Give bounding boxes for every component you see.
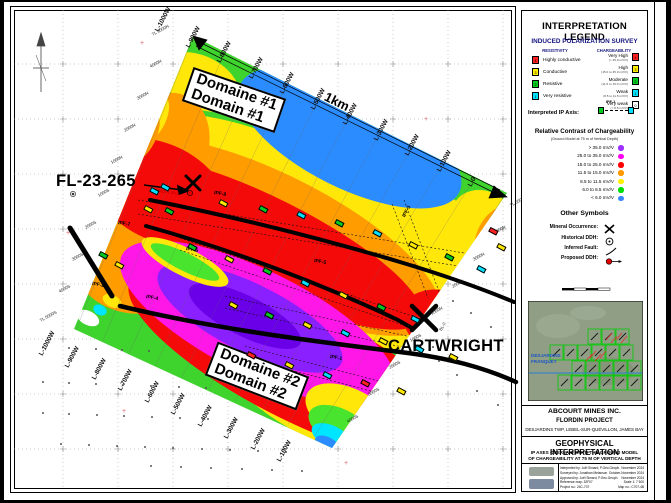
ip-axis-chip: [496, 243, 506, 251]
historical-ddh-dot: [42, 412, 44, 414]
chargeability-chip: 2: [632, 77, 639, 85]
chargeability-caption: (8.5 to 11.5 mV/V): [568, 94, 628, 98]
credit-row: Reference map: 32F07Scale 1: 7 500: [560, 480, 644, 484]
ip-axis-chip: [476, 265, 486, 273]
ipf-label: IPF-8: [213, 190, 226, 198]
ip-axis-chip: [340, 329, 350, 337]
inset-label-desjardins: DESJARDINS: [531, 353, 561, 358]
station-label-west: 4000S: [58, 283, 71, 293]
resistivity-chip: 3: [532, 68, 539, 76]
chargeability-label: Very High(> 35.0 mV/V): [568, 53, 628, 62]
chargeability-caption: (> 35.0 mV/V): [568, 58, 628, 62]
titleblock-separator: [522, 463, 647, 464]
station-label-west: 1000N: [110, 154, 124, 164]
chargeability-caption: (11.5 to 15.0 mV/V): [568, 82, 628, 86]
credit-label: Project no.: 24C-707: [560, 485, 589, 489]
ip-axis-chip: [396, 387, 406, 395]
credits-divider: [558, 463, 559, 491]
station-label-east: 2000S: [388, 359, 401, 369]
ip-axis-chip-cyan: [628, 107, 634, 114]
line-label-bottom: L-200W: [250, 427, 267, 451]
ipf-label: IPF-4: [145, 294, 158, 302]
historical-ddh-dot: [476, 390, 478, 392]
mineral-occurrence-row: Mineral Occurrence:: [524, 224, 598, 230]
historical-ddh-dot: [271, 469, 273, 471]
historical-ddh-dot: [150, 465, 152, 467]
credit-row: Project no.: 24C-707Map no.: C707-4B: [560, 485, 644, 489]
map-subtitle-1: IP AXES OVERLAID ONTO THE GROUND MODEL: [522, 450, 647, 455]
ip-axis-chip: [218, 199, 228, 207]
station-label-east: 3000N: [472, 251, 486, 261]
cartwright-label: CARTWRIGHT: [388, 337, 504, 356]
map-sheet: FL-23-265 CARTWRIGHT Domaine #1 Domain #…: [0, 0, 671, 503]
historical-ddh-dot: [179, 417, 181, 419]
line-label-top: L-900W: [185, 25, 202, 49]
historical-ddh-dot: [172, 447, 174, 449]
proposed-ddh-icon: [605, 253, 623, 271]
grid-cross-red: +: [424, 118, 428, 122]
inset-label-franquet: FRANQUET: [531, 359, 557, 364]
line-label-bottom: L-800W: [91, 357, 108, 381]
proposed-ddh-row: Proposed DDH:: [524, 255, 598, 261]
contrast-subtitle: (Ground Model at 75 m of Vertical Depth): [522, 137, 647, 141]
line-label-top: L-700W: [248, 56, 265, 80]
station-label-west: 4000N: [149, 58, 163, 68]
contrast-dot: [618, 179, 624, 185]
line-label-top: L-800W: [216, 40, 233, 64]
ip-axis-chip: [300, 279, 310, 287]
contrast-label: > 35.0 mV/V: [526, 145, 614, 150]
line-label-top: L-100W: [436, 149, 453, 173]
chargeability-chip: 3: [632, 65, 639, 73]
historical-ddh-dot: [151, 416, 153, 418]
historical-ddh-dot: [301, 470, 303, 472]
line-label-top: L-300W: [373, 118, 390, 142]
credit-row: Surveyed by: Jonathan MelansonOctober-No…: [560, 471, 644, 475]
map-subtitle-2: OF CHARGEABILITY AT 75 M OF VERTICAL DEP…: [522, 456, 647, 461]
line-label-bottom: L-500W: [170, 392, 187, 416]
historical-ddh-dot: [88, 444, 90, 446]
contrast-title: Relative Contrast of Chargeability: [522, 128, 647, 135]
ip-axis-chip: [376, 303, 386, 311]
titleblock-separator: [522, 405, 647, 406]
historical-ddh-dot: [144, 446, 146, 448]
other-symbols-title: Other Symbols: [522, 210, 647, 217]
chargeability-label: Weak(8.5 to 11.5 mV/V): [568, 89, 628, 98]
resistivity-label: Resistive: [543, 82, 562, 87]
ip-axis-chip: [224, 255, 234, 263]
line-label-top: L-200W: [404, 133, 421, 157]
historical-ddh-dot: [207, 418, 209, 420]
resistivity-chip: 2: [532, 80, 539, 88]
station-label-east: 4000S: [346, 413, 359, 423]
resistivity-label: Conductive: [543, 70, 567, 75]
ip-axis-chip: [302, 321, 312, 329]
historical-ddh-dot: [60, 443, 62, 445]
ipf-label: IPF-2: [91, 281, 104, 289]
chargeability-label: High(15.0 to 35.0 mV/V): [568, 65, 628, 74]
company-logo: [529, 467, 554, 476]
contrast-label: 6.0 to 8.5 mV/V: [526, 187, 614, 192]
chargeability-caption: (15.0 to 35.0 mV/V): [568, 70, 628, 74]
historical-ddh-dot: [438, 360, 440, 362]
historical-ddh-dot: [452, 300, 454, 302]
line-label-bottom: L-1000W: [38, 330, 57, 357]
credit-row: Approved by: Joël Simard, P.Geo.Geoph.No…: [560, 476, 644, 480]
historical-ddh-dot: [68, 413, 70, 415]
historical-ddh-dot: [456, 374, 458, 376]
station-label-west: TL 5000S: [39, 310, 58, 323]
grid-cross-red: +: [140, 42, 144, 46]
chargeability-chip: 4: [632, 53, 639, 61]
historical-ddh-dot: [210, 467, 212, 469]
line-label-top: L-600W: [279, 71, 296, 95]
station-label-west: 3000S: [71, 251, 84, 261]
credit-value: November 2024: [621, 466, 644, 470]
contractor-logo: [529, 479, 554, 489]
inferred-fault-row: Inferred Fault:: [524, 245, 598, 251]
historical-ddh-dot: [497, 404, 499, 406]
contrast-label: 8.5 to 11.5 mV/V: [526, 179, 614, 184]
company-name: ABCOURT MINES INC.: [522, 408, 647, 415]
ip-axis-chip-green: [598, 107, 604, 114]
contrast-dot: [618, 187, 624, 193]
historical-ddh-dot: [201, 448, 203, 450]
historical-ddh-dot: [121, 349, 123, 351]
credit-label: Approved by: Joël Simard, P.Geo.Geoph.: [560, 476, 618, 480]
drillhole-label: FL-23-265: [56, 172, 136, 191]
ipf-label: IPF-3: [401, 205, 412, 219]
contrast-label: < 6.0 mV/V: [526, 195, 614, 200]
chargeability-chip: 1: [632, 89, 639, 97]
ip-axis-chip: [296, 211, 306, 219]
credit-value: Scale 1: 7 500: [624, 480, 644, 484]
line-label-bottom: L-700W: [117, 368, 134, 392]
line-label-bottom: L-400W: [197, 404, 214, 428]
historical-ddh-dot: [96, 414, 98, 416]
ipf-label: IPF-5: [313, 258, 326, 266]
station-label-west: 2000S: [84, 219, 97, 229]
historical-ddh-dot: [95, 348, 97, 350]
ip-axis-chip: [228, 301, 238, 309]
ip-axis-chip: [322, 371, 332, 379]
legend-panel: INTERPRETATION LEGEND INDUCED POLARIZATI…: [521, 10, 648, 492]
line-label-bottom: L-600W: [144, 380, 161, 404]
resistivity-chip: 4: [532, 56, 539, 64]
line-label-bottom: L-900W: [64, 345, 81, 369]
ip-axis-chip: [98, 251, 108, 259]
contrast-label: 15.0 to 25.0 mV/V: [526, 162, 614, 167]
historical-ddh-dot: [470, 312, 472, 314]
historical-ddh-dot: [123, 415, 125, 417]
ip-axis-chip: [372, 229, 382, 237]
historical-ddh-dot: [257, 450, 259, 452]
station-label-west: 3000N: [136, 90, 150, 100]
ip-axis-connector: [605, 110, 628, 111]
historical-ddh-dot: [229, 449, 231, 451]
credit-row: Interpreted by: Joël Simard, P.Geo.Geoph…: [560, 466, 644, 470]
credit-value: November 2024: [621, 476, 644, 480]
domain1-box: Domaine #1 Domain #1: [182, 67, 287, 133]
ip-axis-chip: [114, 261, 124, 269]
ip-axis-chip: [378, 337, 388, 345]
historical-ddh-dot: [490, 326, 492, 328]
line-label-bottom: L-300W: [223, 416, 240, 440]
historical-ddh-dot: [95, 383, 97, 385]
project-location: DESJARDINS TWP, LEBEL-SUR-QUÉVILLON, JAM…: [522, 427, 647, 432]
ip-axis-chip: [444, 253, 454, 261]
historical-ddh-dot: [68, 347, 70, 349]
ip-axis-chip: [164, 207, 174, 215]
inset-location-map: DESJARDINS FRANQUET: [528, 301, 643, 406]
historical-ddh-dot: [178, 386, 180, 388]
ip-axis-chip: [410, 315, 420, 323]
grid-cross-red: +: [344, 462, 348, 466]
credit-value: October-November 2024: [609, 471, 644, 475]
contrast-dot: [618, 170, 624, 176]
titleblock-separator: [522, 436, 647, 437]
grid-cross-red: +: [66, 232, 70, 236]
baseline-label: BL-0: [438, 321, 447, 331]
credit-label: Interpreted by: Joël Simard, P.Geo.Geoph…: [560, 466, 620, 470]
ipf-label: IPF-7: [117, 220, 130, 228]
ip-axis-label: Interpreted IP Axis:: [528, 110, 579, 116]
mini-scalebar: [560, 281, 612, 299]
contrast-dot: [618, 162, 624, 168]
station-label-west: 2000N: [123, 122, 137, 132]
historical-ddh-dot: [241, 468, 243, 470]
contrast-dot: [618, 196, 624, 202]
historical-ddh-dot: [148, 350, 150, 352]
ipf-label: IPF-1: [329, 354, 342, 362]
ip-axis-chip: [338, 291, 348, 299]
historical-ddh-row: Historical DDH:: [524, 235, 598, 241]
ip-axis-chip: [360, 379, 370, 387]
ip-survey-heading: INDUCED POLARIZATION SURVEY: [522, 38, 647, 45]
credit-label: Surveyed by: Jonathan Melanson: [560, 471, 607, 475]
contrast-label: 25.0 to 35.0 mV/V: [526, 153, 614, 158]
historical-ddh-dot: [116, 445, 118, 447]
ip-axis-tag: IPF-1: [606, 100, 615, 104]
station-label-east: 3000S: [367, 386, 380, 396]
ip-axis-chip: [408, 241, 418, 249]
contrast-dot: [618, 154, 624, 160]
historical-ddh-dot: [42, 381, 44, 383]
credit-value: Map no.: C707-4B: [618, 485, 644, 489]
historical-ddh-dot: [68, 382, 70, 384]
resistivity-chip: 1: [532, 92, 539, 100]
project-name: FLORDIN PROJECT: [522, 418, 647, 424]
ip-axis-chip: [264, 311, 274, 319]
ip-axis-chip: [262, 267, 272, 275]
station-label-east: 2000N: [451, 278, 465, 288]
station-label-east: 1000N: [430, 305, 444, 315]
contrast-label: 11.5 to 15.0 mV/V: [526, 170, 614, 175]
contrast-dot: [618, 145, 624, 151]
ip-axis-chip: [258, 205, 268, 213]
grid-cross-red: +: [122, 410, 126, 414]
historical-ddh-dot: [205, 387, 207, 389]
credit-label: Reference map: 32F07: [560, 480, 593, 484]
ip-axis-chip: [334, 219, 344, 227]
domain2-box: Domaine #2 Domain #2: [205, 342, 310, 411]
historical-ddh-dot: [180, 466, 182, 468]
line-label-top: L-0: [467, 176, 478, 188]
chargeability-label: Moderate(11.5 to 15.0 mV/V): [568, 77, 628, 86]
ip-axis-chip: [143, 205, 153, 213]
